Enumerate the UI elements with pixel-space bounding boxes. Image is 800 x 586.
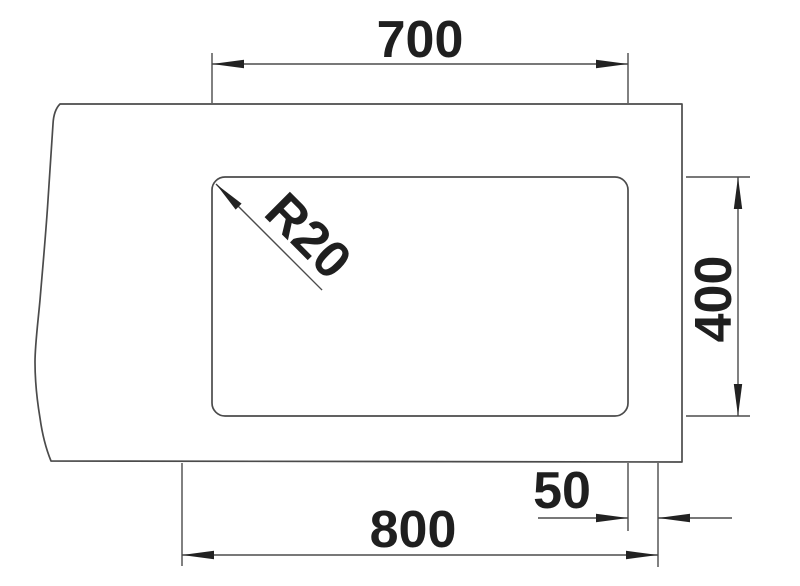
- arrow-up-icon: [734, 177, 742, 209]
- arrow-right-icon: [626, 551, 658, 559]
- dim-label-edge-offset: 50: [533, 462, 591, 520]
- dim-label-corner-radius: R20: [254, 182, 362, 290]
- arrow-down-icon: [734, 384, 742, 416]
- arrow-left-icon: [182, 551, 214, 559]
- countertop-outline: [35, 104, 682, 462]
- arrow-right-icon: [596, 60, 628, 68]
- dimension-drawing: 700 400 800 50: [0, 0, 800, 586]
- drawing-canvas: 700 400 800 50: [0, 0, 800, 586]
- dim-label-overall-width: 800: [370, 501, 457, 559]
- arrow-right-icon: [596, 514, 628, 522]
- dim-edge-offset: 50: [533, 462, 732, 531]
- dim-label-cutout-width: 700: [377, 11, 464, 69]
- dim-label-cutout-height: 400: [685, 256, 743, 343]
- arrow-up-left-icon: [213, 181, 242, 210]
- arrow-left-icon: [212, 60, 244, 68]
- dim-cutout-width: 700: [212, 11, 628, 103]
- dim-cutout-height: 400: [685, 177, 750, 416]
- arrow-left-icon: [658, 514, 690, 522]
- dim-corner-radius: R20: [213, 144, 362, 293]
